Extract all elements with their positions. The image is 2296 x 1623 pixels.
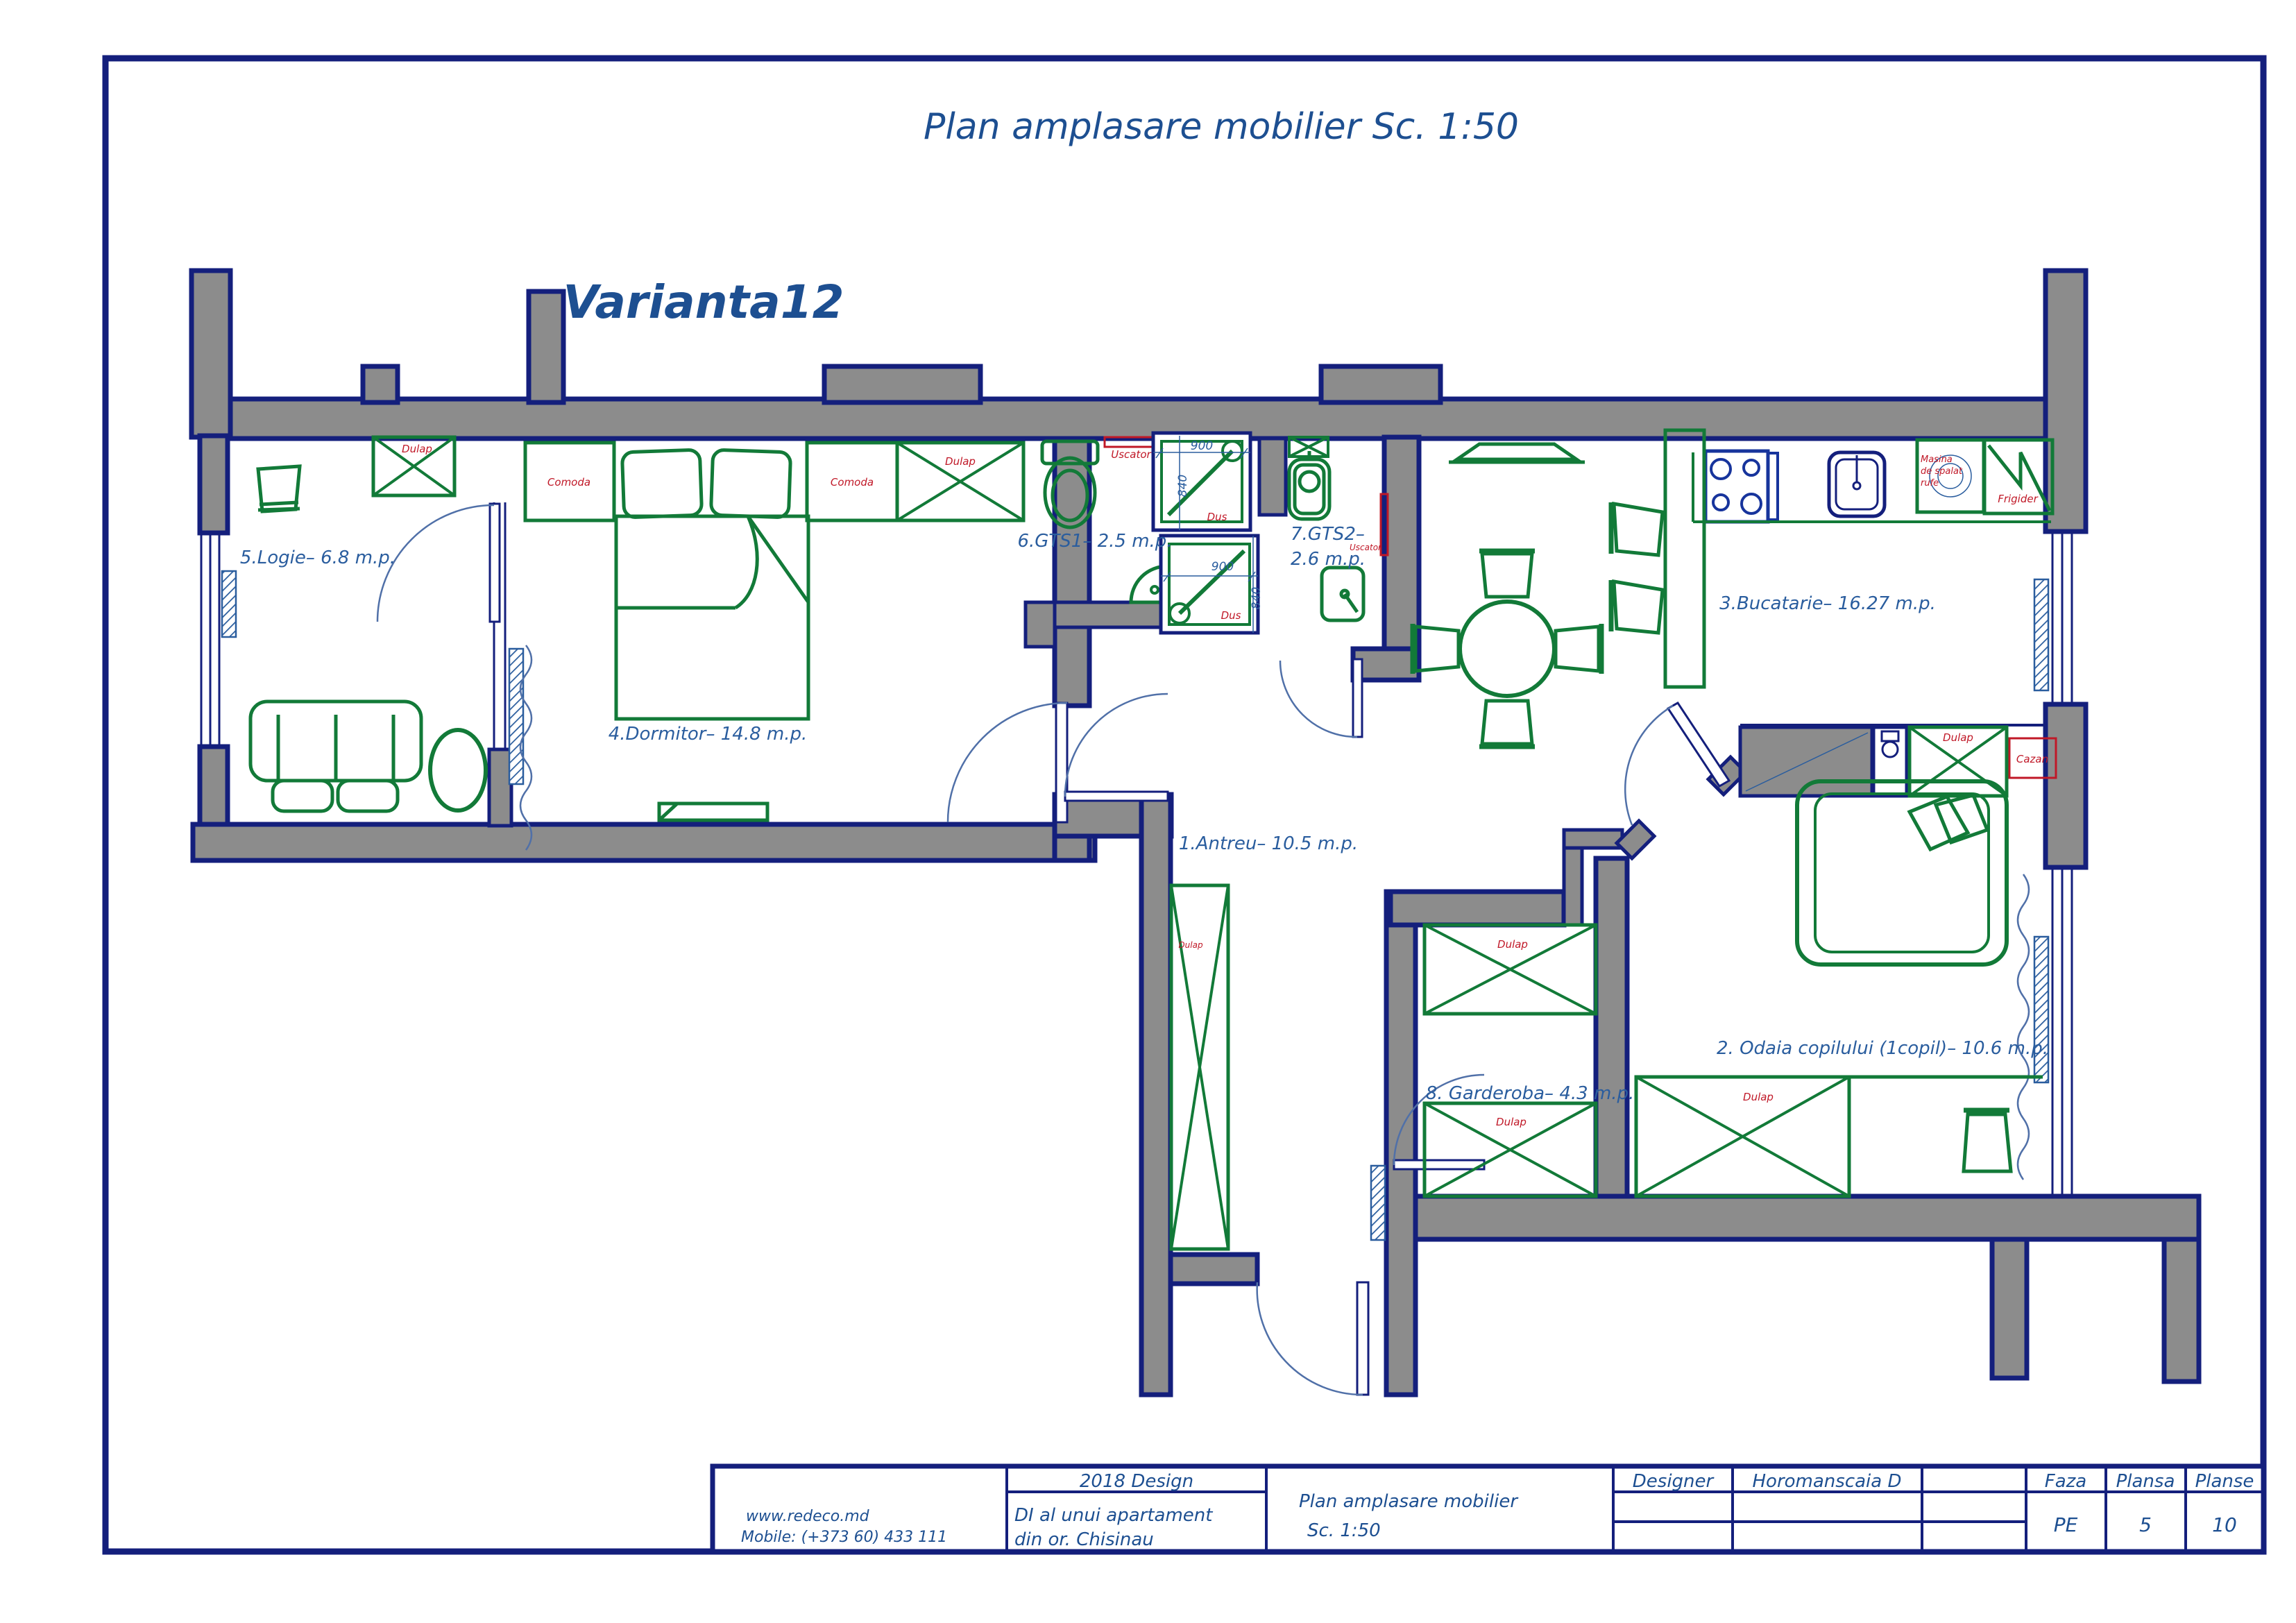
- curtain-odaia: [2018, 874, 2029, 1180]
- furniture-logie: [250, 437, 486, 811]
- radiator-kitchen: [2034, 579, 2048, 690]
- radiator-partition: [509, 649, 523, 784]
- label-dulap-dormitor: Dulap: [945, 455, 976, 468]
- titleblock-drawing-1: Plan amplasare mobilier: [1299, 1491, 1519, 1512]
- bed-dormitor: [616, 450, 808, 719]
- titleblock-project-2: din or. Chisinau: [1014, 1529, 1154, 1550]
- titleblock-designer-label: Designer: [1633, 1471, 1715, 1492]
- door-leaf-logie: [490, 504, 500, 622]
- label-comoda-right: Comoda: [831, 476, 874, 488]
- dim-840-shower2: 840: [1250, 587, 1264, 609]
- wall-pier-4: [1321, 366, 1440, 402]
- titleblock-drawing-2: Sc. 1:50: [1307, 1520, 1381, 1541]
- door-arc-antreu: [1065, 694, 1168, 797]
- room-label-gts1: 6.GTS1– 2.5 m.p.: [1017, 531, 1172, 552]
- basin-odaia: [1873, 727, 1907, 796]
- radiators: [222, 571, 2048, 1240]
- label-frigider: Frigider: [1998, 493, 2038, 505]
- titleblock-faza-value: PE: [2054, 1513, 2078, 1536]
- label-dulap-garderoba-top: Dulap: [1497, 938, 1528, 951]
- room-label-logie: 5.Logie– 6.8 m.p.: [240, 547, 396, 568]
- variant-title: Varianta12: [563, 275, 844, 329]
- titleblock-plansa-value: 5: [2139, 1513, 2152, 1536]
- titleblock-planse-label: Planse: [2195, 1471, 2254, 1492]
- wall-pier-3: [824, 366, 980, 402]
- furniture-kitchen: [1413, 430, 2052, 747]
- wardrobe-dormitor: [897, 443, 1023, 520]
- chair-logie: [258, 466, 300, 511]
- label-dulap-odaia-top: Dulap: [1943, 731, 1973, 744]
- shower-gts2: [1161, 536, 1258, 633]
- dining-table: [1413, 551, 1601, 747]
- dim-900-shower2: 900: [1211, 560, 1234, 574]
- wall-shaft: [1026, 602, 1055, 647]
- title-block: www.redeco.md Mobile: (+373 60) 433 111 …: [713, 1466, 2263, 1552]
- dining-chair-bottom: [1479, 701, 1535, 747]
- room-label-bucatarie: 3.Bucatarie– 16.27 m.p.: [1719, 593, 1936, 614]
- titleblock-website: www.redeco.md: [746, 1508, 870, 1525]
- titleblock-mobile: Mobile: (+373 60) 433 111: [741, 1529, 947, 1546]
- wall-door-jamb-a: [1617, 821, 1654, 858]
- bed-odaia: [1797, 781, 2007, 965]
- wall-gts1-south: [1042, 602, 1162, 627]
- wall-gts-mid: [1259, 439, 1286, 515]
- wall-bottom-right-band: [1415, 1196, 2199, 1239]
- wall-corridor-right: [1386, 892, 1415, 1395]
- titleblock-project-1: DI al unui apartament: [1014, 1505, 1213, 1526]
- label-cazan: Cazan: [2016, 753, 2048, 765]
- room-label-antreu: 1.Antreu– 10.5 m.p.: [1179, 833, 1358, 854]
- wall-left-lower: [200, 747, 228, 829]
- floor-plan-canvas: Plan amplasare mobilier Sc. 1:50 Variant…: [0, 0, 2296, 1623]
- wall-garderoba-top: [1391, 892, 1564, 925]
- furniture-garderoba: [1425, 925, 1596, 1196]
- cooker-hood: [1449, 444, 1585, 462]
- kitchen-sink: [1829, 452, 1885, 516]
- bar-counter: [1665, 430, 1704, 687]
- dim-840-shower1: 840: [1176, 475, 1190, 497]
- wall-corridor-left: [1141, 794, 1171, 1395]
- label-dus-1: Dus: [1207, 511, 1227, 523]
- titleblock-year: 2018 Design: [1080, 1471, 1193, 1492]
- titleblock-faza-label: Faza: [2045, 1471, 2086, 1492]
- wall-door-stub: [1564, 830, 1622, 848]
- dining-chair-right: [1556, 624, 1601, 674]
- wall-pillar-midright: [2046, 704, 2086, 867]
- radiator-logie: [222, 571, 236, 637]
- room-label-odaia: 2. Odaia copilului (1copil)– 10.6 m.p.: [1717, 1038, 2048, 1059]
- wall-garderoba-child: [1596, 858, 1627, 1196]
- door-leaf-antreu: [1065, 792, 1168, 801]
- furniture-dormitor: [525, 443, 1023, 820]
- wall-pillar-topleft: [192, 271, 230, 437]
- label-uscator-gts1: Uscator: [1111, 448, 1151, 461]
- toilet-gts2: [1289, 451, 1329, 519]
- door-arc-odaia: [1625, 706, 1673, 825]
- chair-odaia: [1964, 1110, 2011, 1171]
- label-masina-3: rufe: [1921, 478, 1939, 488]
- room-label-garderoba: 8. Garderoba– 4.3 m.p.: [1426, 1083, 1635, 1104]
- stove: [1706, 451, 1778, 522]
- titleblock-planse-value: 10: [2212, 1513, 2237, 1536]
- sink-gts2: [1322, 568, 1363, 620]
- room-label-dormitor: 4.Dormitor– 14.8 m.p.: [609, 724, 808, 745]
- bar-chair-2: [1611, 580, 1663, 633]
- door-leaf-odaia: [1668, 703, 1729, 786]
- label-dulap-antreu: Dulap: [1178, 940, 1203, 950]
- sofa: [250, 702, 421, 811]
- door-leaf-entrance: [1357, 1282, 1368, 1395]
- radiator-corridor: [1371, 1166, 1385, 1240]
- bar-chair-1: [1611, 502, 1663, 555]
- drawing-sheet: Plan amplasare mobilier Sc. 1:50 Variant…: [0, 0, 2296, 1623]
- furniture-odaia: [1636, 727, 2056, 1196]
- label-dus-2: Dus: [1221, 609, 1241, 622]
- wall-left-upper: [200, 436, 228, 533]
- dim-900-shower1: 900: [1191, 439, 1213, 453]
- wall-entry-jamb: [1171, 1255, 1257, 1284]
- door-arc-dormitor: [948, 703, 1067, 822]
- label-masina-1: Masina: [1921, 454, 1953, 465]
- room-label-gts2-line2: 2.6 m.p.: [1291, 549, 1366, 570]
- tv-stand: [659, 804, 767, 820]
- wall-pier-2: [529, 291, 563, 402]
- titleblock-designer-name: Horomanscaia D: [1752, 1471, 1901, 1492]
- door-leaf-garderoba: [1394, 1160, 1484, 1169]
- label-dulap-logie: Dulap: [402, 443, 432, 455]
- room-label-gts2-line1: 7.GTS2–: [1291, 524, 1365, 545]
- titleblock-plansa-label: Plansa: [2116, 1471, 2175, 1492]
- window-logie-left: [198, 532, 222, 747]
- sheet-title: Plan amplasare mobilier Sc. 1:50: [924, 106, 1519, 148]
- door-arc-entrance: [1257, 1282, 1363, 1395]
- side-table-logie: [430, 730, 486, 810]
- label-dulap-odaia-bottom: Dulap: [1743, 1091, 1774, 1103]
- wall-stub-b: [2164, 1239, 2199, 1382]
- wall-bottom-left-band: [193, 824, 1095, 860]
- door-arc-gts2: [1280, 661, 1357, 737]
- label-masina-2: de spalat: [1921, 466, 1963, 477]
- label-comoda-left: Comoda: [547, 476, 590, 488]
- wall-partition-stub: [489, 749, 511, 826]
- wall-stub-a: [1992, 1239, 2027, 1378]
- wall-pier-1: [363, 366, 398, 402]
- door-leaf-gts2: [1353, 659, 1362, 737]
- dining-chair-top: [1479, 551, 1535, 597]
- door-leaf-dormitor: [1056, 703, 1067, 822]
- window-odaia-right: [2052, 867, 2072, 1196]
- radiator-odaia: [2034, 937, 2048, 1082]
- label-dulap-garderoba-bottom: Dulap: [1496, 1116, 1527, 1128]
- window-kitchen-right: [2052, 532, 2072, 704]
